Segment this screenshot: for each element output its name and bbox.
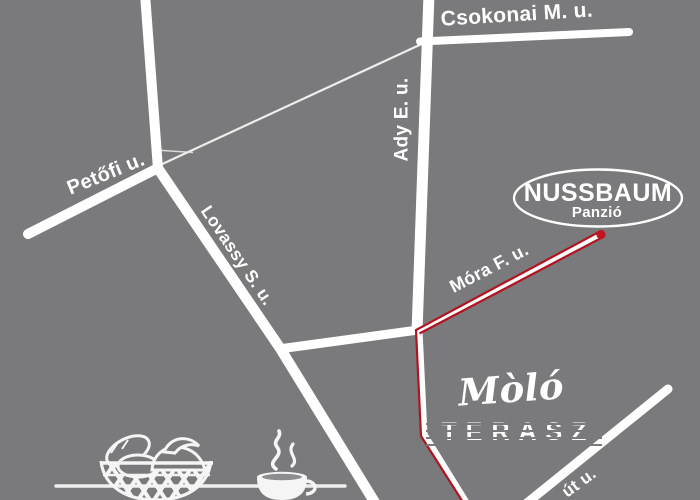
red-dot-marker [596,230,605,239]
road-ady [417,0,429,332]
road-cross [279,330,418,349]
coffee-cup-icon [257,431,315,500]
road-thin-connector [158,42,426,166]
destination-name: NUSSBAUM [513,181,683,206]
bread-basket-icon [90,429,214,500]
road-route-south [420,330,468,500]
route-map: Csokonai M. u. Ady E. u. Petőfi u. Lovas… [0,0,700,500]
road-csokonai [420,32,629,42]
destination-subtitle: Panzió [512,205,682,220]
venue-logo-caps: TERASZ [426,418,602,448]
street-label-ady: Ady E. u. [393,60,412,180]
